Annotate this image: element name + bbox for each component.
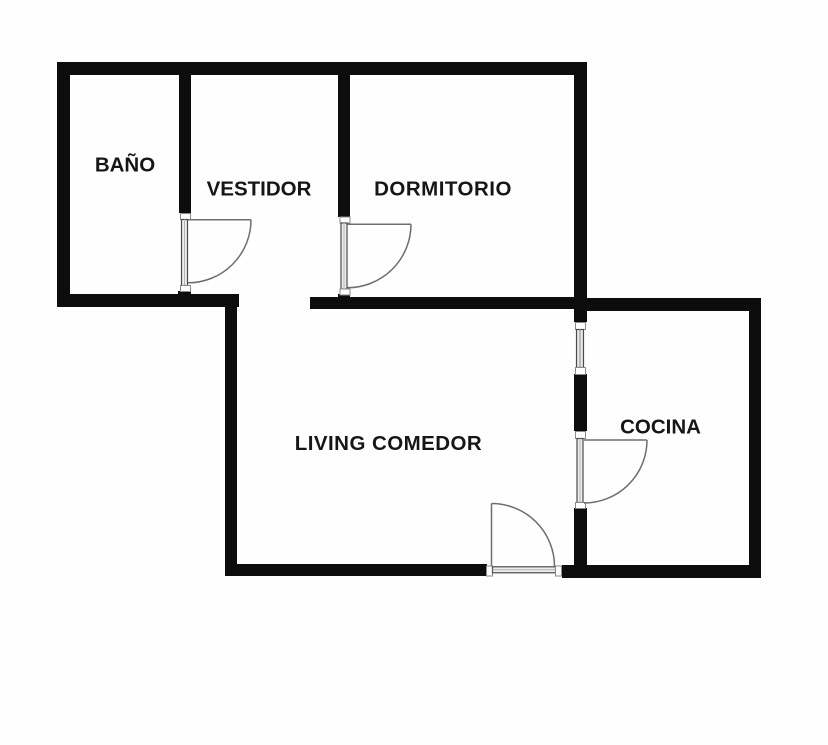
svg-text:DORMITORIO: DORMITORIO (374, 178, 512, 201)
svg-text:VESTIDOR: VESTIDOR (207, 178, 312, 201)
svg-text:LIVING COMEDOR: LIVING COMEDOR (295, 432, 482, 455)
svg-text:BAÑO: BAÑO (95, 154, 155, 177)
svg-text:COCINA: COCINA (620, 416, 701, 439)
